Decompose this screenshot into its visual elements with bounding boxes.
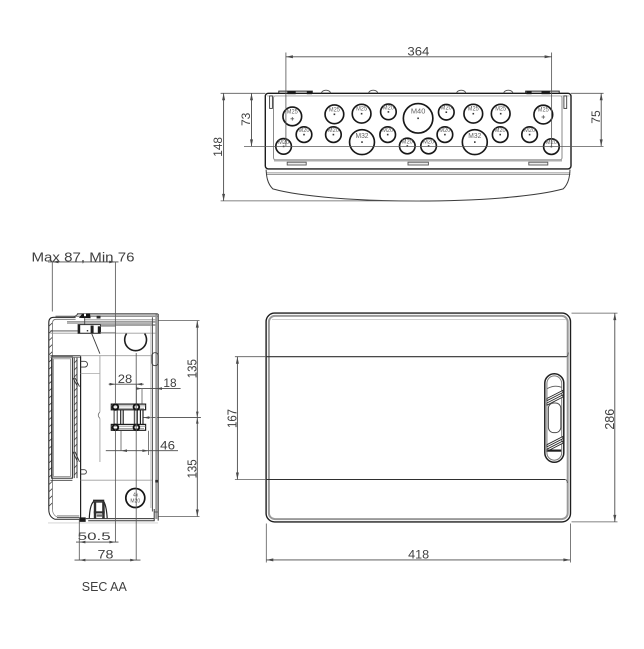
svg-text:18: 18 (163, 376, 177, 390)
svg-text:M20: M20 (328, 127, 340, 134)
svg-text:50.5: 50.5 (78, 531, 111, 543)
svg-text:M20: M20 (299, 127, 311, 134)
svg-text:M25: M25 (468, 106, 480, 113)
svg-text:135: 135 (185, 359, 199, 378)
svg-text:286: 286 (603, 409, 617, 430)
svg-text:M40: M40 (411, 109, 426, 116)
svg-text:M25: M25 (356, 106, 368, 113)
svg-text:M25: M25 (495, 106, 507, 113)
svg-text:M20: M20 (423, 139, 435, 146)
svg-text:M20: M20 (278, 139, 290, 146)
svg-text:M20: M20 (382, 127, 394, 134)
svg-text:M20: M20 (402, 139, 414, 146)
svg-text:73: 73 (239, 112, 253, 126)
svg-text:M20: M20 (130, 499, 140, 505)
svg-text:46: 46 (160, 438, 175, 452)
svg-text:167: 167 (225, 409, 240, 428)
svg-text:364: 364 (407, 44, 429, 58)
svg-text:418: 418 (408, 549, 429, 561)
svg-text:M32: M32 (356, 133, 369, 140)
svg-text:M25: M25 (538, 107, 550, 114)
svg-text:M20: M20 (383, 104, 395, 111)
svg-text:135: 135 (185, 459, 199, 478)
svg-text:M20: M20 (524, 127, 536, 134)
svg-text:75: 75 (589, 110, 603, 124)
svg-text:M20: M20 (441, 105, 453, 112)
svg-text:M32: M32 (468, 133, 481, 140)
svg-text:78: 78 (98, 548, 114, 562)
svg-text:M20: M20 (439, 127, 451, 134)
svg-text:M25: M25 (287, 108, 299, 115)
svg-text:148: 148 (211, 137, 225, 157)
svg-text:M20: M20 (495, 127, 507, 134)
svg-text:SEC AA: SEC AA (82, 580, 128, 594)
svg-text:Max 87, Min 76: Max 87, Min 76 (32, 250, 135, 265)
svg-text:M25: M25 (329, 106, 341, 113)
